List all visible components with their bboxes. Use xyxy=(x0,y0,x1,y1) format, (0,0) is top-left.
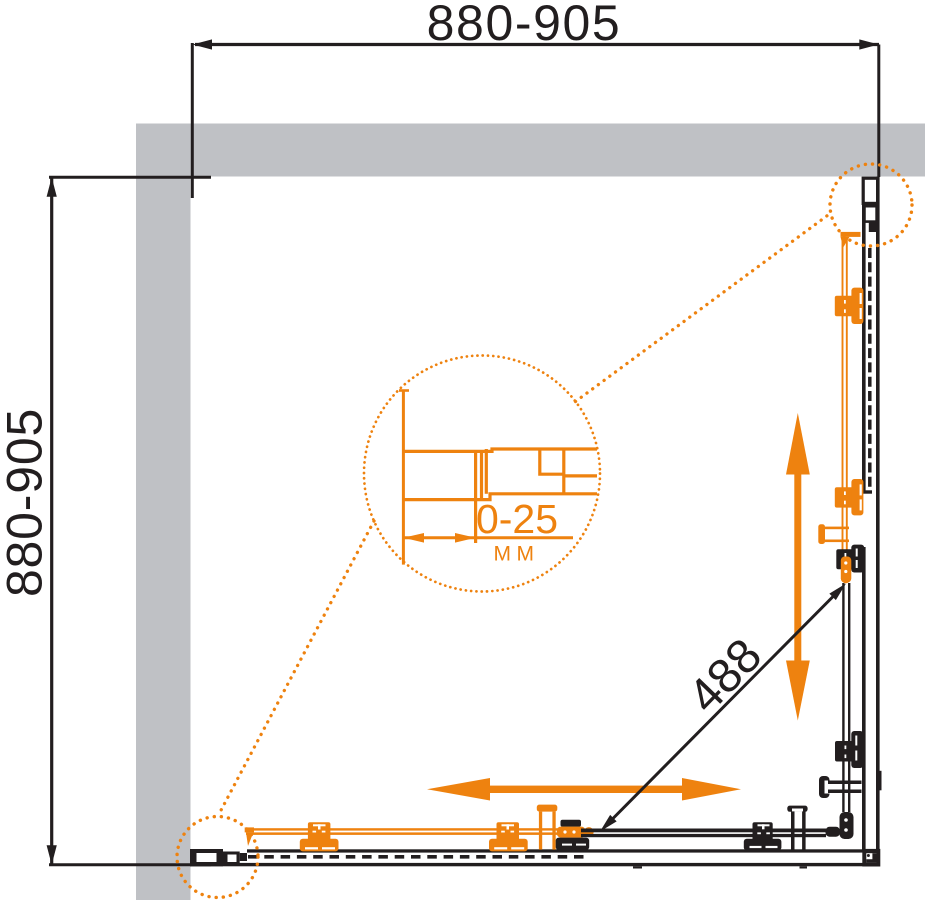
svg-text:0-25: 0-25 xyxy=(476,496,558,542)
svg-text:ММ: ММ xyxy=(494,543,540,566)
svg-text:880-905: 880-905 xyxy=(427,0,622,51)
svg-text:880-905: 880-905 xyxy=(0,408,53,597)
